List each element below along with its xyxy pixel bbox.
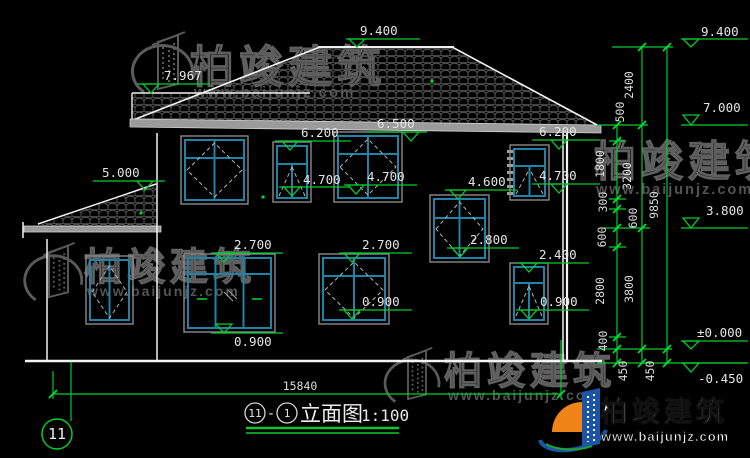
dim-fine-6: 400 [596,331,610,352]
level-label-porch: 5.000 [102,165,140,180]
dim-floor-0: 2400 [622,71,636,99]
dim-fine-7: 450 [616,361,630,382]
dim-floor-3: 450 [643,361,657,382]
level-label-eaves: 6.500 [377,116,415,131]
watermark-left-middle: 柏竣建筑 www.baijunjz.com [25,243,256,300]
window-stair [430,195,489,262]
dim-fine-4: 600 [595,227,609,248]
title-name: 立面图 [300,403,363,426]
level-right-ridge: 9.400 [681,24,748,47]
porch-eaves-fascia [24,226,161,232]
svg-text:0.900: 0.900 [540,294,578,309]
dim-floor-2: 3800 [622,275,636,303]
brand-name: 柏竣建筑 [600,395,728,427]
svg-text:6.200: 6.200 [301,125,339,140]
level-stair-sill: 2.800 [447,232,519,257]
svg-text:2.700: 2.700 [234,237,272,252]
level-label-left-wing: 7.967 [164,68,202,83]
dim-fine-2: 300 [596,192,610,213]
level-right-eaves: 7.000 [681,100,748,125]
svg-text:0.900: 0.900 [234,334,272,349]
watermark-url-text: www.baijunjz.com [595,182,750,198]
svg-text:4.700: 4.700 [303,172,341,187]
svg-text:3.800: 3.800 [706,203,744,218]
snap-dot [261,195,264,198]
snap-dot [139,211,142,214]
watermark-bottom-center: 柏竣建筑 www.baijunjz.com [385,348,616,403]
dim-floor-1: 3200 [620,162,634,190]
svg-text:4.700: 4.700 [539,168,577,183]
elevation-drawing: 柏竣建筑 www.baijunjz.com 柏竣建筑 www.baijunjz.… [0,0,750,458]
svg-text:4.700: 4.700 [367,169,405,184]
right-level-marks: 9.400 7.000 3.800 ±0.000 -0.450 [681,24,748,386]
svg-text:4.600: 4.600 [468,174,506,189]
level-second-floor: 3.800 [681,203,748,228]
title-separator: - [267,406,275,422]
level-f2-sill-left: 4.700 [279,172,350,196]
dim-fine-0: 500 [613,102,627,123]
level-label-ridge: 9.400 [360,23,398,38]
dim-total-width: 15840 [283,379,318,393]
svg-text:0.900: 0.900 [362,294,400,309]
cad-elevation-canvas: 柏竣建筑 www.baijunjz.com 柏竣建筑 www.baijunjz.… [0,0,750,458]
dim-fine-3: 600 [626,208,640,229]
level-site: -0.450 [681,363,748,386]
drawing-title: 11 - 1 立面图 1:100 [245,403,409,433]
svg-text:-0.450: -0.450 [698,371,743,386]
level-f2-sill-mid: 4.700 [344,169,417,194]
title-scale: 1:100 [361,406,409,425]
title-ref-b: 1 [284,407,291,420]
svg-text:7.000: 7.000 [703,100,741,115]
dim-fine-5: 2800 [593,277,607,305]
level-f1-sill-mid: 0.900 [339,294,412,319]
window-f2-mid [334,132,402,202]
svg-text:2.400: 2.400 [539,247,577,262]
svg-text:6.200: 6.200 [539,124,577,139]
level-f1-sill-right: 0.900 [516,294,589,319]
svg-text:±0.000: ±0.000 [697,325,742,340]
snap-dot [430,79,433,82]
title-ref-a: 11 [248,407,261,420]
dim-fine-1: 1800 [593,150,607,178]
level-ground-zero: ±0.000 [681,325,748,349]
level-f1-small-top: 2.400 [516,247,589,272]
watermark-url-text: www.baijunjz.com [447,387,601,403]
dim-total-height: 9850 [647,191,661,219]
brand-site: www.baijunjz.com [600,429,729,444]
building-elevation [23,47,602,361]
svg-text:2.800: 2.800 [470,232,508,247]
logo-building-blue [582,388,600,448]
axis-grid-11: 11 [42,362,72,449]
axis-bubble-label: 11 [48,425,66,443]
porch-roof-hatch [40,185,156,227]
logo-fan-orange [552,402,582,432]
window-f1-mid [319,254,389,324]
svg-text:9.400: 9.400 [701,24,739,39]
window-f2-left [181,136,248,204]
svg-text:2.700: 2.700 [362,237,400,252]
